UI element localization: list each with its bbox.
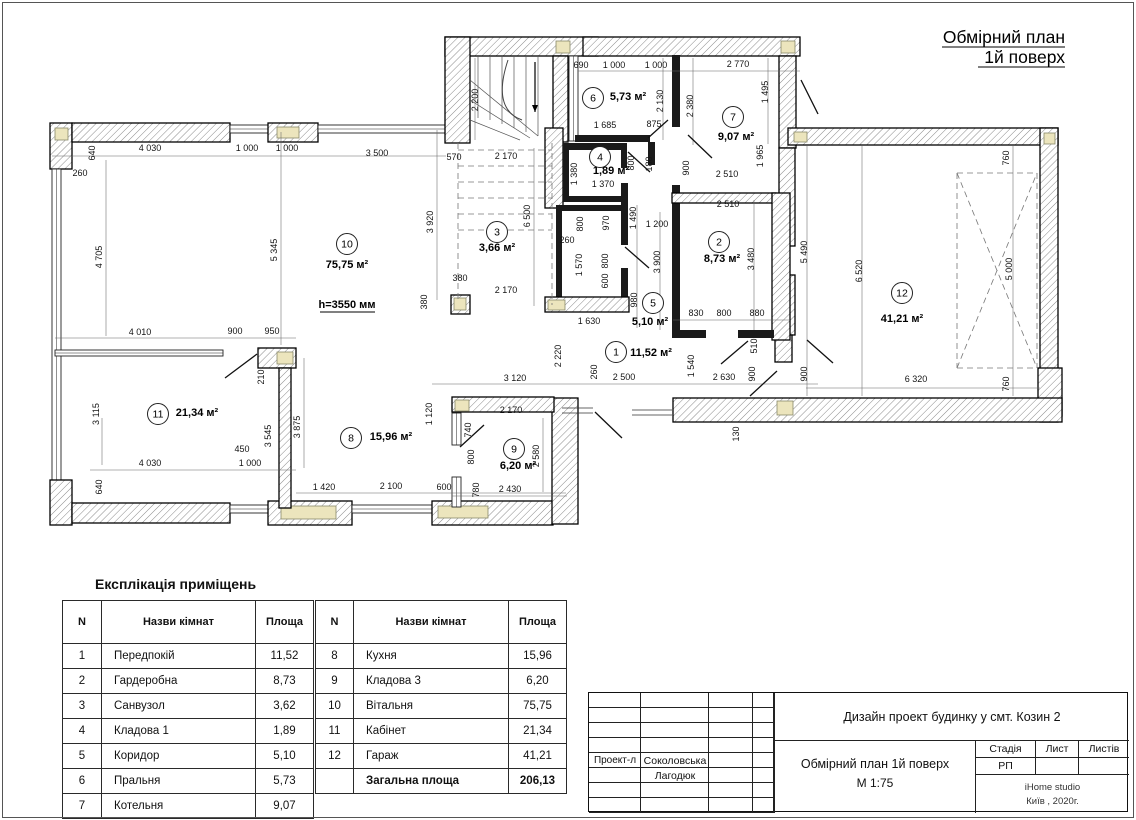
dimension-label: 2 170 [495,285,518,295]
dimension-label: 570 [446,152,461,162]
stage-label-cell: Стадія [976,741,1036,758]
room-number: 1 [613,347,619,359]
legend-cell: Кладова 1 [102,719,256,744]
dimension-label: 970 [601,215,611,230]
legend-cell: Загальна площа [354,769,509,794]
partition-wall [738,330,774,338]
legend-row: 8Кухня15,96 [316,644,567,669]
title-block-role: Проект-л [589,753,641,768]
dimension-label: 600 [436,482,451,492]
partition-wall [575,135,650,142]
plan-title-line1: Обмірний план [943,27,1065,47]
dimension-label: 2 510 [717,199,740,209]
stage-value-cell: РП [976,758,1036,775]
legend-row: Загальна площа206,13 [316,769,567,794]
legend-cell: 21,34 [509,719,567,744]
wall-pier [777,401,793,415]
wall-pier [55,128,68,140]
legend-cell: 15,96 [509,644,567,669]
door-swing [721,341,748,364]
dimension-label: 900 [681,160,691,175]
title-block-grid-cell [589,723,641,738]
dimension-label: 210 [256,369,266,384]
title-block-grid-cell [589,768,641,783]
dimension-label: 510 [749,338,759,353]
dimension-label: 1 380 [569,163,579,186]
title-block-grid-cell [589,708,641,723]
title-block-grid-cell [753,783,774,798]
dimension-label: 3 920 [425,211,435,234]
title-block-grid-cell [589,693,641,708]
legend-cell: 11 [316,719,354,744]
wall-pier [454,298,466,310]
dimension-label: 2 630 [713,372,736,382]
dimension-label: 260 [72,168,87,178]
drawing-sheet: 6402604 0301 0001 0003 5005702 1702 2006… [0,0,1136,820]
dimension-label: 1 495 [760,81,770,104]
legend-cell: Котельня [102,794,256,819]
wall-segment [772,193,790,340]
room-number: 10 [341,239,353,251]
legend-row: 6Пральня5,73 [63,769,314,794]
legend-cell: 9,07 [256,794,314,819]
title-block-doc: Обмірний план 1й поверх М 1:75 [774,741,976,813]
dimension-label: 3 875 [292,416,302,439]
wall-pier [1044,133,1055,144]
dimension-label: 260 [589,364,599,379]
wall-pier [556,41,570,53]
wall-pier [277,127,299,138]
title-block-grid-cell [709,783,753,798]
partition-wall [672,330,706,338]
legend-table-right: NНазви кімнатПлоща8Кухня15,969Кладова 36… [315,600,567,794]
legend-table-left: NНазви кімнатПлоща1Передпокій11,522Гарде… [62,600,314,819]
stair-tread [470,80,538,136]
legend-header: Площа [256,601,314,644]
title-block-grid-cell [709,738,753,753]
dimension-label: 1 000 [645,60,668,70]
title-block-grid-cell [589,783,641,798]
door-swing [595,412,622,438]
dimension-label: 1 490 [628,207,638,230]
dimension-label: 800 [466,449,476,464]
dimension-label: 2 380 [685,95,695,118]
legend-row: 7Котельня9,07 [63,794,314,819]
room-area-label: 9,07 м² [718,131,755,143]
title-block-grid-cell [641,783,709,798]
legend-cell: 8,73 [256,669,314,694]
legend-cell: 2 [63,669,102,694]
studio-cell: iHome studio Київ , 2020г. [976,775,1129,813]
legend-cell: Гардеробна [102,669,256,694]
dimension-label: 6 320 [905,374,928,384]
partition-wall [672,185,680,335]
dimension-label: 2 500 [613,372,636,382]
wall-segment [445,37,470,143]
title-block-grid-cell [753,738,774,753]
legend-cell: Вітальня [354,694,509,719]
wall-pier [277,352,293,364]
legend-cell: Санвузол [102,694,256,719]
title-block-grid-cell [641,738,709,753]
title-block-grid-cell [709,693,753,708]
dimension-label: 1 630 [578,316,601,326]
ceiling-height-note: h=3550 мм [319,299,376,311]
wall-segment [583,37,800,56]
dimension-label: 5 490 [799,241,809,264]
title-block-grid-cell [753,753,774,768]
legend-cell [316,769,354,794]
dimension-label: 875 [646,119,661,129]
dimension-label: 4 010 [129,327,152,337]
room-number: 8 [348,433,354,445]
room-area-label: 11,52 м² [630,347,672,359]
dimension-label: 2 220 [553,345,563,368]
dimension-label: 260 [559,235,574,245]
title-block-grid-cell [589,798,641,813]
dimension-label: 6 500 [522,205,532,228]
dimension-label: 1 000 [239,458,262,468]
room-area-label: 41,21 м² [881,313,924,325]
wall-pier [438,506,488,518]
partition-wall [560,205,624,211]
dimension-label: 740 [463,422,473,437]
room-area-label: 1,89 м² [593,165,630,177]
partition-wall [672,55,680,127]
wall-segment [72,503,230,523]
room-number: 2 [716,237,722,249]
legend-cell: 4 [63,719,102,744]
title-block-grid-cell [709,753,753,768]
wall-segment [50,480,72,525]
wall-pier [794,132,807,142]
dimension-label: 5 345 [269,239,279,262]
room-number: 6 [590,93,596,105]
door-swing [807,340,833,363]
partition-wall [556,205,562,305]
dimension-label: 2 770 [727,59,750,69]
room-number: 12 [896,288,908,300]
dimension-label: 900 [747,366,757,381]
legend-row: 9Кладова 36,20 [316,669,567,694]
dimension-label: 2 510 [716,169,739,179]
dimension-label: 2 130 [655,90,665,113]
legend-row: 12Гараж41,21 [316,744,567,769]
dimension-label: 180 [644,156,654,171]
doc-title: Обмірний план 1й поверх [801,757,949,771]
partition-wall [621,183,628,245]
dimension-label: 1 685 [594,120,617,130]
dimension-label: 900 [227,326,242,336]
dimension-label: 2 200 [470,89,480,112]
legend-cell: 9 [316,669,354,694]
legend-cell: Гараж [354,744,509,769]
title-block-grid-cell [709,768,753,783]
dimension-label: 640 [87,145,97,160]
dimension-label: 1 540 [686,355,696,378]
room-number: 3 [494,227,500,239]
dimension-label: 3 120 [504,373,527,383]
legend-row: 11Кабінет21,34 [316,719,567,744]
legend-cell: 5,73 [256,769,314,794]
title-block-grid-cell [641,693,709,708]
stair-tread [470,120,520,140]
legend-cell: 41,21 [509,744,567,769]
legend-cell: 75,75 [509,694,567,719]
room-area-label: 15,96 м² [370,431,413,443]
dimension-label: 600 [600,273,610,288]
door-swing [688,135,712,158]
dimension-label: 380 [452,273,467,283]
dimension-label: 3 900 [652,251,662,274]
dimension-label: 1 000 [603,60,626,70]
legend-header: Назви кімнат [354,601,509,644]
title-block-grid-cell [709,708,753,723]
dimension-label: 760 [1001,376,1011,391]
door-swing [225,354,257,378]
title-block-project: Дизайн проект будинку у смт. Козин 2 [774,693,1129,741]
wall-segment [72,123,230,142]
dimension-label: 4 030 [139,143,162,153]
dimension-label: 2 170 [495,151,518,161]
dimension-label: 1 965 [755,145,765,168]
wall-segment [545,128,563,208]
dimension-label: 2 170 [500,405,523,415]
title-block-grid-cell [589,738,641,753]
dimension-label: 2 100 [380,481,403,491]
title-block-name2: Лагодюк [641,768,709,783]
dimension-label: 4 030 [139,458,162,468]
doc-scale: М 1:75 [857,776,894,790]
title-block-name1: Соколовська [641,753,709,768]
dimension-label: 1 570 [574,254,584,277]
dimension-label: 1 120 [424,403,434,426]
room-area-label: 21,34 м² [176,407,219,419]
legend-cell: 3 [63,694,102,719]
title-block-grid-cell [709,798,753,813]
dimension-label: 3 480 [746,248,756,271]
title-block-grid-cell [753,723,774,738]
sheets-value-cell [1079,758,1129,775]
sheets-label-cell: Листів [1079,741,1129,758]
legend-cell: 1 [63,644,102,669]
dimension-label: 830 [688,308,703,318]
legend-header: N [316,601,354,644]
dimension-label: 800 [575,216,585,231]
dimension-label: 4 705 [94,246,104,269]
plan-title-line2: 1й поверх [984,47,1065,67]
title-block-grid-cell [753,768,774,783]
title-block-grid-cell [753,708,774,723]
wall-segment [788,128,1058,145]
wall-segment [279,368,291,508]
wall-pier [455,400,469,411]
legend-cell: 6 [63,769,102,794]
legend-row: 3Санвузол3,62 [63,694,314,719]
room-area-label: 3,66 м² [479,242,516,254]
studio-name: iHome studio [1025,782,1080,793]
room-number: 9 [511,444,517,456]
dimension-label: 950 [264,326,279,336]
room-number: 7 [730,112,736,124]
dimension-label: 3 115 [91,403,101,425]
legend-cell: 8 [316,644,354,669]
wall-pier [548,300,565,310]
legend-cell: Коридор [102,744,256,769]
title-block-grid-cell [753,798,774,813]
title-block-grid-cell [641,723,709,738]
legend-cell: 11,52 [256,644,314,669]
room-area-label: 6,20 м² [500,460,537,472]
title-block-grid-cell [709,723,753,738]
legend-cell: Кладова 3 [354,669,509,694]
legend-cell: 206,13 [509,769,567,794]
sheet-value-cell [1036,758,1079,775]
sheet-label-cell: Лист [1036,741,1079,758]
dimension-label: 2 430 [499,484,522,494]
title-block-grid-cell [641,708,709,723]
title-block-grid-cell [641,798,709,813]
room-area-label: 5,73 м² [610,91,647,103]
legend-cell: 5,10 [256,744,314,769]
dimension-label: 450 [234,444,249,454]
dimension-label: 3 500 [366,148,389,158]
room-area-label: 75,75 м² [326,259,369,271]
legend-cell: Пральня [102,769,256,794]
dimension-label: 760 [1001,150,1011,165]
dimension-label: 800 [716,308,731,318]
room-number: 5 [650,298,656,310]
legend-cell: Кабінет [354,719,509,744]
dimension-label: 5 000 [1004,258,1014,281]
legend-title: Експлікація приміщень [95,576,256,592]
legend-cell: Кухня [354,644,509,669]
stair-handrail [502,60,522,120]
wall-segment [552,398,578,524]
legend-header: Площа [509,601,567,644]
dimension-label: 690 [573,60,588,70]
legend-cell: 1,89 [256,719,314,744]
dimension-label: 640 [94,479,104,494]
dimension-label: 3 545 [263,425,273,448]
legend-cell: 10 [316,694,354,719]
title-block: Проект-л Соколовська Лагодюк Дизайн прое… [588,692,1128,812]
legend-cell: 5 [63,744,102,769]
legend-row: 4Кладова 11,89 [63,719,314,744]
legend-cell: 6,20 [509,669,567,694]
dimension-label: 130 [731,426,741,441]
partition-wall [563,196,627,202]
dimension-label: 380 [419,294,429,309]
dimension-label: 1 000 [236,143,259,153]
dimension-label: 6 520 [854,260,864,283]
door-swing [801,80,818,114]
stair-direction-arrow [532,105,538,112]
title-block-grid-cell [753,693,774,708]
dimension-label: 880 [749,308,764,318]
room-number: 11 [153,409,164,421]
wall-segment [673,398,1062,422]
legend-cell: Передпокій [102,644,256,669]
legend-row: 1Передпокій11,52 [63,644,314,669]
dimension-label: 980 [629,292,639,307]
legend-header: Назви кімнат [102,601,256,644]
dimension-label: 900 [799,366,809,381]
legend-header: N [63,601,102,644]
legend-row: 5Коридор5,10 [63,744,314,769]
dimension-label: 1 000 [276,143,299,153]
dimension-label: 1 420 [313,482,336,492]
room-area-label: 5,10 м² [632,316,669,328]
dimension-label: 1 370 [592,179,615,189]
legend-cell: 3,62 [256,694,314,719]
studio-city: Київ , 2020г. [1026,796,1079,807]
legend-row: 2Гардеробна8,73 [63,669,314,694]
dimension-label: 800 [600,253,610,268]
walls-layer [50,37,1062,525]
legend-cell: 7 [63,794,102,819]
room-number: 4 [597,152,603,164]
legend-cell: 12 [316,744,354,769]
dimension-label: 1 200 [646,219,669,229]
dimension-label: 780 [471,482,481,497]
room-area-label: 8,73 м² [704,253,741,265]
wall-pier [781,41,795,53]
legend-row: 10Вітальня75,75 [316,694,567,719]
